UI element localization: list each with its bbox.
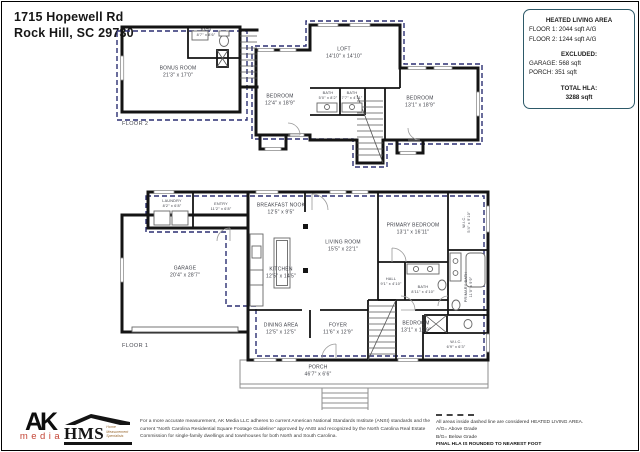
room-dims: 46'7" x 6'6" (304, 371, 331, 377)
room-label-bath-f2-top: BATH8'7" x 8'6" (197, 28, 216, 38)
room-name: BATH (201, 28, 212, 32)
porch-outline (240, 360, 488, 410)
room-name: BEDROOM (402, 321, 429, 327)
room-dims: 14'10" x 14'10" (326, 53, 362, 59)
room-label-kitchen: KITCHEN12'5" x 14'5" (266, 267, 296, 280)
room-dims: 12'4" x 18'9" (265, 100, 295, 106)
legend-line-1: All areas inside dashed line are conside… (436, 419, 632, 426)
room-name: W.I.C. (462, 216, 466, 228)
room-label-wic-primary: W.I.C.5'4" x 9'10" (462, 211, 472, 232)
floor1-tag: FLOOR 1 (122, 343, 148, 349)
room-label-loft: LOFT14'10" x 14'10" (326, 47, 362, 60)
legend-line-4: FINAL HLA IS ROUNDED TO NEAREST FOOT (436, 441, 632, 448)
room-dims: 20'4" x 28'7" (170, 272, 200, 278)
room-dims: 13'1" x 16'11" (397, 229, 430, 235)
room-label-entry: ENTRY11'2" x 6'8" (211, 202, 232, 212)
room-dims: 5'0" x 8'2" (319, 96, 338, 100)
ak-logo-letters: AK (16, 412, 64, 433)
room-dims: 12'5" x 9'5" (267, 209, 294, 215)
room-name: GARAGE (174, 266, 197, 272)
room-name: BONUS ROOM (160, 66, 197, 72)
room-dims: 12'5" x 12'5" (266, 329, 296, 335)
room-name: HALL (386, 277, 396, 281)
room-dims: 8'7" x 8'6" (197, 33, 216, 37)
room-dims: 21'3" x 17'0" (163, 72, 193, 78)
ak-media-logo: AK media (16, 412, 64, 442)
room-label-laundry: LAUNDRY8'2" x 6'8" (162, 199, 181, 209)
room-dims: 5'4" x 9'10" (467, 211, 471, 232)
room-label-bath-f2-a: BATH5'0" x 8'2" (319, 91, 338, 101)
room-name: PORCH (308, 365, 327, 371)
room-dims: 7'7" x 4'11" (342, 96, 363, 100)
room-name: LAUNDRY (162, 199, 181, 203)
room-name: BEDROOM (406, 96, 433, 102)
room-label-breakfast-nook: BREAKFAST NOOK12'5" x 9'5" (257, 203, 305, 216)
room-name: KITCHEN (269, 267, 292, 273)
room-label-bedroom-f2-left: BEDROOM12'4" x 18'9" (265, 94, 295, 107)
room-dims: 6'9" x 6'3" (447, 345, 466, 349)
hms-tagline-3: Specialists (106, 434, 128, 439)
floor2-tag: FLOOR 2 (122, 121, 148, 127)
measurement-disclaimer: For a more accurate measurement, AK Medi… (140, 418, 432, 441)
hms-tagline: Home Measurement Specialists (106, 425, 128, 441)
room-dims: 11'6" x 12'9" (323, 329, 353, 335)
legend: All areas inside dashed line are conside… (436, 414, 632, 448)
legend-line-3: B/G= Below Grade (436, 434, 632, 441)
room-dims: 8'11" x 4'10" (411, 290, 434, 294)
room-label-foyer: FOYER11'6" x 12'9" (323, 323, 353, 336)
room-name: DINING AREA (264, 323, 298, 329)
room-dims: 8'2" x 6'8" (163, 204, 182, 208)
room-name: ENTRY (214, 202, 228, 206)
hms-logo: HMS Home Measurement Specialists (64, 414, 136, 445)
floor-plan-page: 1715 Hopewell Rd Rock Hill, SC 29730 HEA… (0, 0, 640, 452)
room-name: BATH (323, 91, 334, 95)
room-label-wic-bedroom: W.I.C.6'9" x 6'3" (447, 340, 466, 350)
room-dims: 12'5" x 14'5" (266, 273, 296, 279)
room-label-bedroom-f1: BEDROOM13'1" x 12'9" (401, 321, 431, 334)
room-label-garage: GARAGE20'4" x 28'7" (170, 266, 200, 279)
room-name: W.I.C. (450, 340, 462, 344)
footer: AK media HMS Home Measurement Specialist… (0, 408, 640, 450)
legend-line-2: A/G= Above Grade (436, 426, 632, 433)
room-name: LIVING ROOM (325, 240, 361, 246)
room-name: BATH (418, 285, 429, 289)
stairs (217, 36, 447, 360)
posts (303, 224, 308, 273)
room-dims: 11'2" x 6'8" (211, 207, 232, 211)
room-name: LOFT (337, 47, 351, 53)
hms-letters: HMS (64, 426, 104, 441)
room-label-dining-area: DINING AREA12'5" x 12'5" (264, 323, 298, 336)
dashed-line-sample (436, 414, 474, 416)
room-name: BEDROOM (266, 94, 293, 100)
room-label-primary-bedroom: PRIMARY BEDROOM13'1" x 16'11" (387, 223, 440, 236)
room-label-living-room: LIVING ROOM15'5" x 22'1" (325, 240, 361, 253)
room-dims: 13'1" x 18'9" (405, 102, 435, 108)
room-label-bedroom-f2-right: BEDROOM13'1" x 18'9" (405, 96, 435, 109)
floor-plans-drawing (0, 0, 640, 452)
room-label-primary-bath: PRIMARY BATH11'0" x 9'9" (464, 272, 474, 302)
room-label-bonus-room: BONUS ROOM21'3" x 17'0" (160, 66, 197, 79)
room-dims: 13'1" x 12'9" (401, 327, 431, 333)
room-dims: 15'5" x 22'1" (328, 246, 358, 252)
room-name: BATH (347, 91, 358, 95)
room-label-bath-f2-b: BATH7'7" x 4'11" (342, 91, 363, 101)
room-name: PRIMARY BEDROOM (387, 223, 440, 229)
room-label-porch: PORCH46'7" x 6'6" (304, 365, 331, 378)
room-dims: 11'0" x 9'9" (469, 277, 473, 298)
room-name: PRIMARY BATH (464, 272, 468, 302)
room-name: FOYER (329, 323, 347, 329)
room-label-hall: HALL9'1" x 4'10" (380, 277, 401, 287)
ak-logo-media: media (19, 431, 64, 442)
room-name: BREAKFAST NOOK (257, 203, 305, 209)
room-dims: 9'1" x 4'10" (380, 282, 401, 286)
room-label-bath-f1: BATH8'11" x 4'10" (411, 285, 434, 295)
